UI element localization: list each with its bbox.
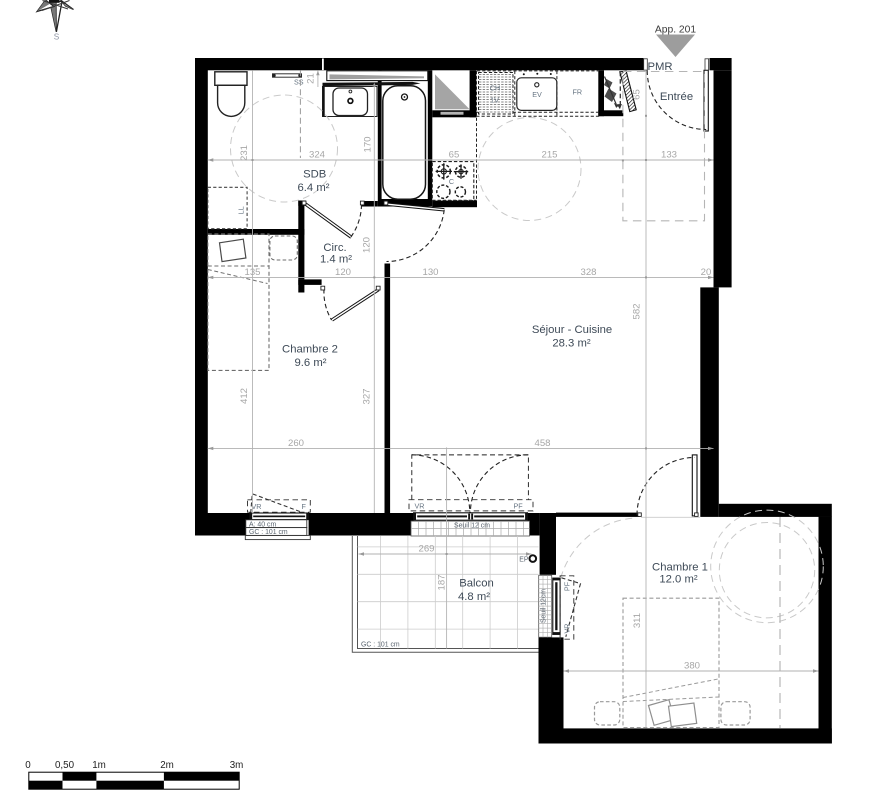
- svg-text:1.4 m²: 1.4 m²: [320, 253, 352, 265]
- svg-text:231: 231: [239, 145, 250, 161]
- svg-text:21: 21: [306, 73, 317, 84]
- svg-text:120: 120: [335, 267, 351, 278]
- svg-text:PMR: PMR: [647, 61, 672, 73]
- svg-text:412: 412: [239, 388, 250, 404]
- svg-text:VR: VR: [415, 501, 425, 510]
- svg-text:170: 170: [362, 136, 373, 152]
- svg-text:20: 20: [701, 267, 712, 278]
- svg-text:65: 65: [632, 89, 643, 100]
- svg-text:LL: LL: [237, 206, 246, 214]
- svg-text:0,50: 0,50: [55, 760, 75, 771]
- svg-text:458: 458: [534, 438, 550, 449]
- svg-text:328: 328: [580, 267, 596, 278]
- svg-text:Seuil 12cm: Seuil 12cm: [541, 589, 548, 623]
- svg-text:120: 120: [362, 237, 373, 253]
- svg-text:SDB: SDB: [303, 169, 326, 181]
- svg-text:Balcon: Balcon: [459, 578, 494, 590]
- svg-text:EP: EP: [519, 556, 529, 563]
- svg-text:FR: FR: [573, 87, 583, 96]
- svg-text:Séjour - Cuisine: Séjour - Cuisine: [532, 324, 612, 336]
- svg-text:3m: 3m: [230, 760, 244, 771]
- svg-text:9.6 m²: 9.6 m²: [294, 357, 326, 369]
- svg-text:4.8 m²: 4.8 m²: [458, 591, 490, 603]
- svg-text:187: 187: [437, 574, 448, 590]
- svg-text:2m: 2m: [160, 760, 174, 771]
- svg-text:S: S: [54, 33, 60, 42]
- svg-text:Seuil 12 cm: Seuil 12 cm: [454, 523, 490, 530]
- svg-text:SS: SS: [294, 77, 304, 86]
- svg-text:130: 130: [422, 267, 438, 278]
- svg-text:260: 260: [288, 438, 304, 449]
- svg-text:311: 311: [632, 613, 643, 628]
- svg-text:1m: 1m: [92, 760, 106, 771]
- svg-text:GC : 101 cm: GC : 101 cm: [361, 642, 400, 649]
- svg-text:App. 201: App. 201: [655, 25, 696, 36]
- svg-text:CH: CH: [490, 84, 500, 93]
- svg-text:Entrée: Entrée: [660, 91, 693, 103]
- svg-text:VR: VR: [563, 624, 572, 634]
- svg-text:0: 0: [25, 760, 31, 771]
- svg-text:65: 65: [449, 149, 460, 160]
- svg-text:215: 215: [541, 149, 557, 160]
- svg-text:F: F: [302, 502, 307, 511]
- svg-text:Chambre 2: Chambre 2: [282, 344, 338, 356]
- svg-text:28.3 m²: 28.3 m²: [552, 338, 591, 350]
- svg-text:324: 324: [309, 149, 326, 160]
- svg-text:VR: VR: [252, 502, 262, 511]
- svg-text:327: 327: [362, 388, 373, 404]
- svg-text:Chambre 1: Chambre 1: [652, 561, 708, 573]
- svg-text:PF: PF: [514, 501, 524, 510]
- svg-text:6.4 m²: 6.4 m²: [297, 182, 329, 194]
- svg-text:269: 269: [418, 544, 434, 555]
- svg-text:C: C: [449, 177, 454, 186]
- svg-text:135: 135: [244, 267, 260, 278]
- svg-text:GC : 101 cm: GC : 101 cm: [249, 529, 288, 536]
- svg-text:1V: 1V: [490, 96, 499, 105]
- svg-text:EV: EV: [532, 90, 542, 99]
- svg-text:PF: PF: [563, 581, 572, 591]
- svg-text:380: 380: [684, 661, 700, 672]
- svg-text:133: 133: [661, 149, 677, 160]
- svg-text:582: 582: [632, 303, 643, 319]
- svg-text:12.0 m²: 12.0 m²: [659, 573, 698, 585]
